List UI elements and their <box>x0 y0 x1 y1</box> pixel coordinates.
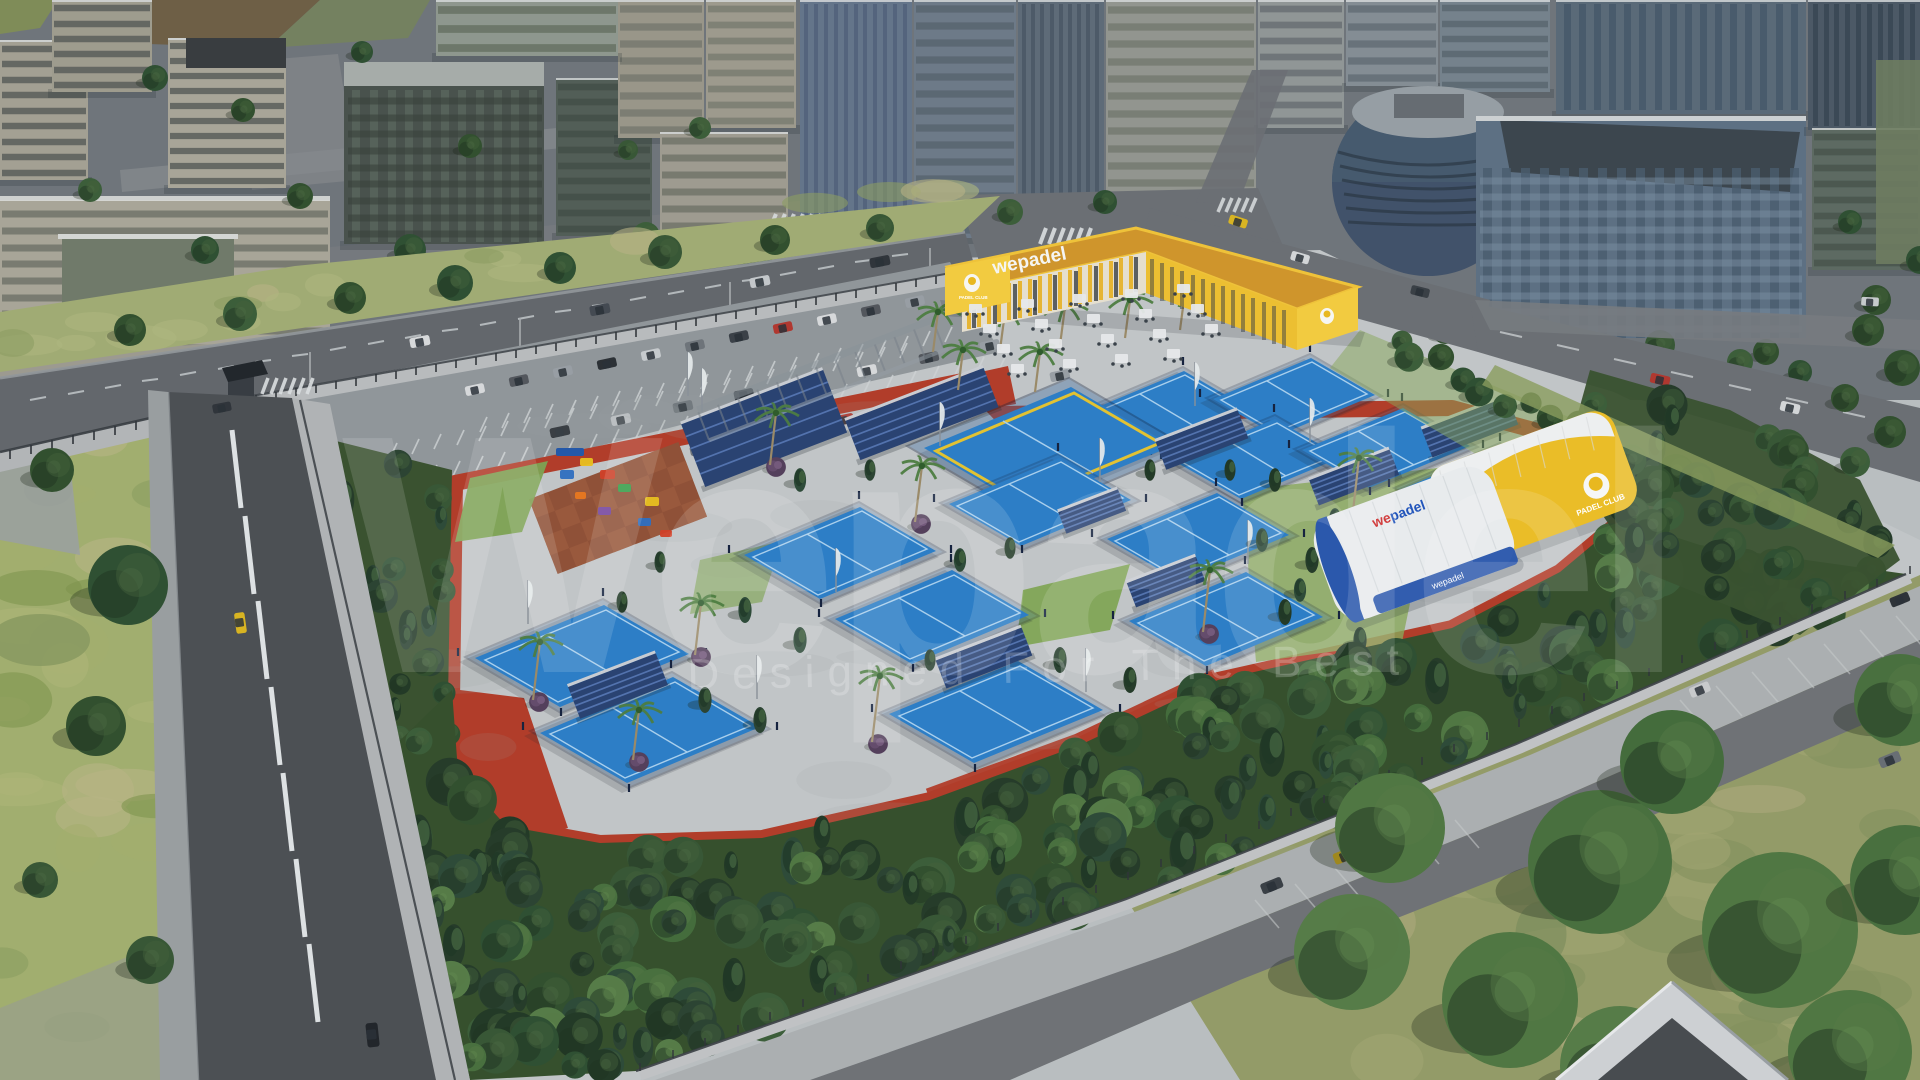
svg-text:PADEL CLUB: PADEL CLUB <box>959 295 988 300</box>
